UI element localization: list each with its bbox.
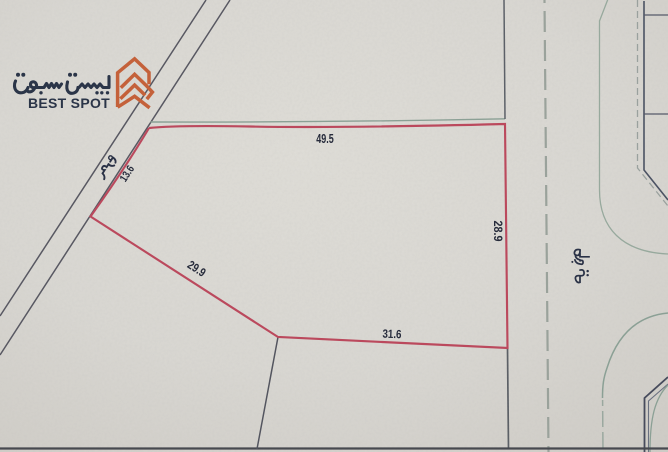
svg-text:49.5: 49.5	[316, 132, 334, 146]
svg-text:BEST SPOT: BEST SPOT	[28, 95, 110, 111]
svg-text:31.6: 31.6	[382, 327, 402, 342]
svg-text:28.9: 28.9	[491, 221, 505, 242]
